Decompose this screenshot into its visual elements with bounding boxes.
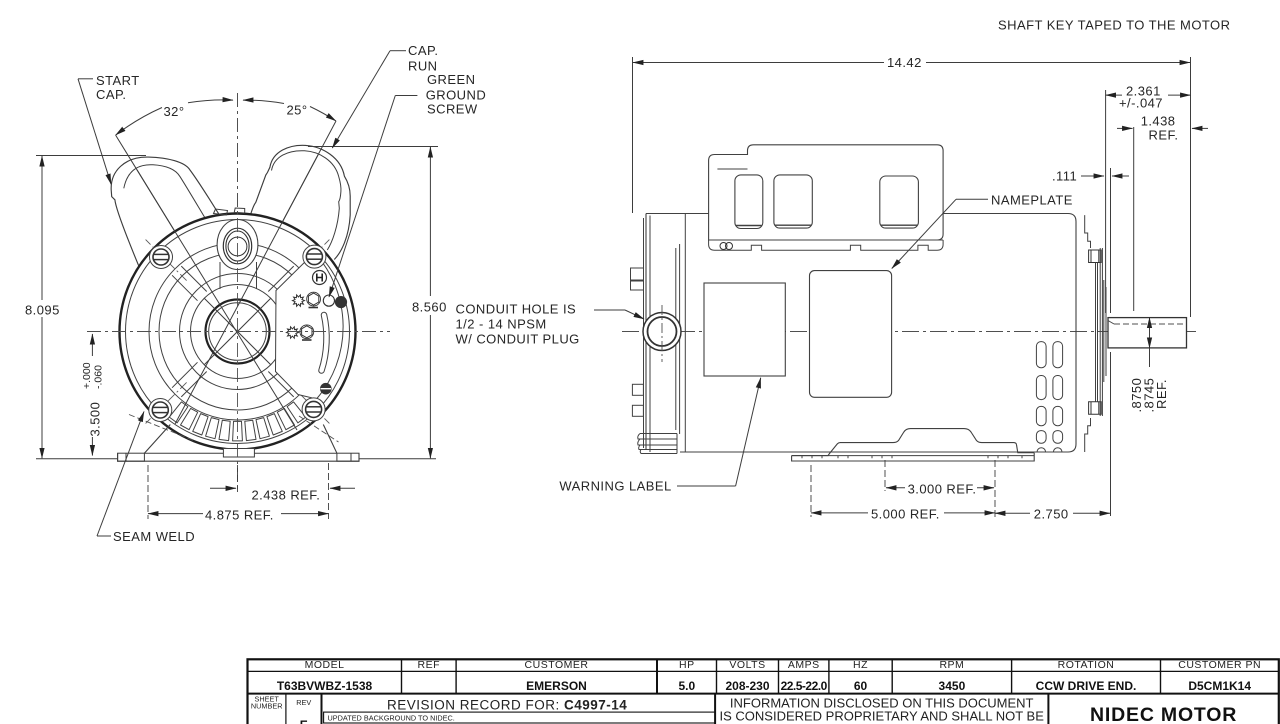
svg-text:8.095: 8.095	[25, 303, 60, 318]
svg-text:HZ: HZ	[853, 659, 868, 671]
svg-text:START: START	[96, 73, 140, 88]
svg-text:+/-.047: +/-.047	[1119, 96, 1163, 111]
svg-text:VOLTS: VOLTS	[729, 659, 765, 671]
svg-text:REF: REF	[418, 659, 441, 671]
svg-text:CUSTOMER PN: CUSTOMER PN	[1178, 659, 1261, 671]
svg-text:GREEN: GREEN	[427, 72, 475, 87]
svg-text:CUSTOMER: CUSTOMER	[525, 659, 589, 671]
svg-text:32°: 32°	[164, 104, 185, 119]
svg-text:SCREW: SCREW	[427, 101, 478, 116]
svg-text:E: E	[300, 718, 308, 724]
svg-text:1/2 - 14 NPSM: 1/2 - 14 NPSM	[456, 317, 547, 332]
svg-text:22.5-22.0: 22.5-22.0	[781, 679, 828, 693]
svg-text:REF.: REF.	[1154, 379, 1169, 409]
svg-text:NUMBER: NUMBER	[251, 702, 283, 711]
svg-text:UPDATED BACKGROUND TO NIDEC.: UPDATED BACKGROUND TO NIDEC.	[328, 714, 455, 723]
svg-text:25°: 25°	[287, 103, 308, 118]
svg-text:5.000 REF.: 5.000 REF.	[871, 506, 940, 521]
svg-text:CAP.: CAP.	[96, 87, 126, 102]
svg-text:8.560: 8.560	[412, 300, 447, 315]
svg-text:MODEL: MODEL	[305, 659, 345, 671]
svg-text:+.000: +.000	[81, 362, 93, 389]
svg-text:5.0: 5.0	[678, 679, 695, 693]
svg-text:1.438: 1.438	[1141, 114, 1176, 129]
svg-text:RUN: RUN	[408, 58, 438, 73]
svg-text:SHAFT KEY TAPED TO THE MOTOR: SHAFT KEY TAPED TO THE MOTOR	[998, 18, 1230, 33]
svg-text:.111: .111	[1052, 169, 1077, 184]
svg-text:3.000 REF.: 3.000 REF.	[908, 482, 977, 497]
svg-text:T63BVWBZ-1538: T63BVWBZ-1538	[277, 679, 373, 693]
svg-text:2.750: 2.750	[1034, 507, 1069, 522]
svg-text:ROTATION: ROTATION	[1058, 659, 1115, 671]
svg-text:3450: 3450	[939, 679, 966, 693]
svg-text:CONDUIT HOLE IS: CONDUIT HOLE IS	[456, 302, 577, 317]
svg-text:4.875 REF.: 4.875 REF.	[205, 508, 274, 523]
svg-text:W/ CONDUIT PLUG: W/ CONDUIT PLUG	[456, 332, 580, 347]
svg-text:REV: REV	[296, 698, 311, 707]
svg-text:REF.: REF.	[1149, 128, 1179, 143]
svg-text:D5CM1K14: D5CM1K14	[1188, 679, 1251, 693]
svg-text:HP: HP	[679, 659, 695, 671]
svg-text:WARNING LABEL: WARNING LABEL	[559, 479, 671, 494]
svg-text:EMERSON: EMERSON	[526, 679, 587, 693]
svg-text:IS CONSIDERED PROPRIETARY AND: IS CONSIDERED PROPRIETARY AND SHALL NOT …	[720, 709, 1045, 724]
svg-text:14.42: 14.42	[887, 55, 922, 70]
svg-text:REVISION RECORD FOR: C4997-14: REVISION RECORD FOR: C4997-14	[387, 698, 627, 713]
svg-text:CCW DRIVE END.: CCW DRIVE END.	[1036, 679, 1137, 693]
svg-text:NAMEPLATE: NAMEPLATE	[991, 192, 1073, 207]
svg-text:CAP.: CAP.	[408, 43, 438, 58]
svg-text:RPM: RPM	[939, 659, 964, 671]
svg-text:208-230: 208-230	[725, 679, 769, 693]
svg-text:SEAM WELD: SEAM WELD	[113, 529, 195, 544]
svg-text:2.438 REF.: 2.438 REF.	[252, 488, 321, 503]
svg-text:-.060: -.060	[93, 365, 105, 389]
svg-text:60: 60	[854, 679, 868, 693]
svg-text:NIDEC MOTOR: NIDEC MOTOR	[1090, 704, 1237, 724]
svg-text:3.500: 3.500	[88, 402, 103, 437]
svg-text:GROUND: GROUND	[426, 87, 486, 102]
svg-text:AMPS: AMPS	[788, 659, 820, 671]
